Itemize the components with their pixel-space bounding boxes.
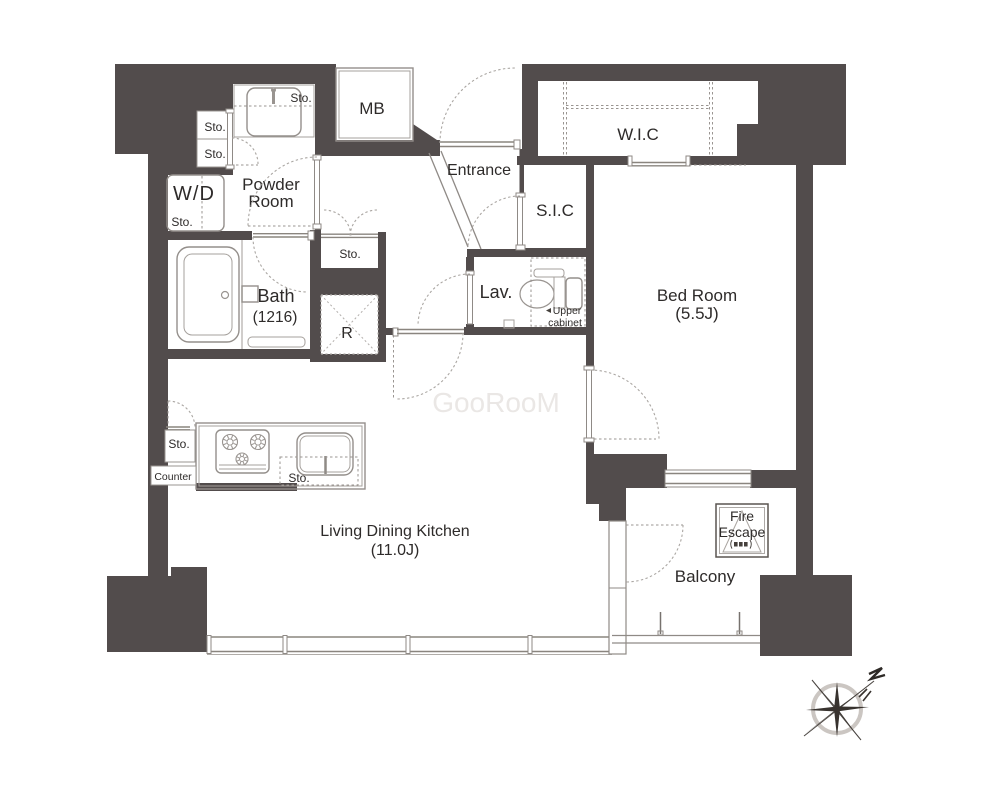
svg-text:Counter: Counter <box>154 471 192 483</box>
svg-text:W/D: W/D <box>173 183 215 205</box>
svg-text:MB: MB <box>359 99 385 118</box>
svg-text:S.I.C: S.I.C <box>536 201 574 220</box>
svg-text:(1216): (1216) <box>253 309 298 326</box>
svg-text:Sto.: Sto. <box>290 91 311 105</box>
svg-text:Lav.: Lav. <box>480 282 513 302</box>
svg-text:Room: Room <box>248 192 293 211</box>
svg-text:Sto.: Sto. <box>204 120 225 134</box>
svg-text:cabinet: cabinet <box>548 317 582 329</box>
svg-text:Sto.: Sto. <box>204 147 225 161</box>
svg-text:Balcony: Balcony <box>675 567 736 586</box>
svg-text:Sto.: Sto. <box>168 437 189 451</box>
svg-text:(5.5J): (5.5J) <box>675 304 718 323</box>
svg-text:Sto.: Sto. <box>339 247 360 261</box>
svg-text:Bath: Bath <box>257 286 294 306</box>
svg-text:GooRooM: GooRooM <box>432 387 560 418</box>
svg-text:Entrance: Entrance <box>447 162 511 179</box>
svg-text:(11.0J): (11.0J) <box>371 542 420 559</box>
svg-text:W.I.C: W.I.C <box>617 125 659 144</box>
svg-text:Living Dining Kitchen: Living Dining Kitchen <box>320 523 469 540</box>
svg-text:Sto.: Sto. <box>171 215 192 229</box>
svg-text:Upper: Upper <box>553 305 582 317</box>
svg-text:R: R <box>341 325 353 342</box>
svg-text:Fire: Fire <box>730 508 754 524</box>
svg-text:Sto.: Sto. <box>288 471 309 485</box>
svg-text:Escape: Escape <box>719 524 766 540</box>
svg-text:Bed Room: Bed Room <box>657 286 737 305</box>
